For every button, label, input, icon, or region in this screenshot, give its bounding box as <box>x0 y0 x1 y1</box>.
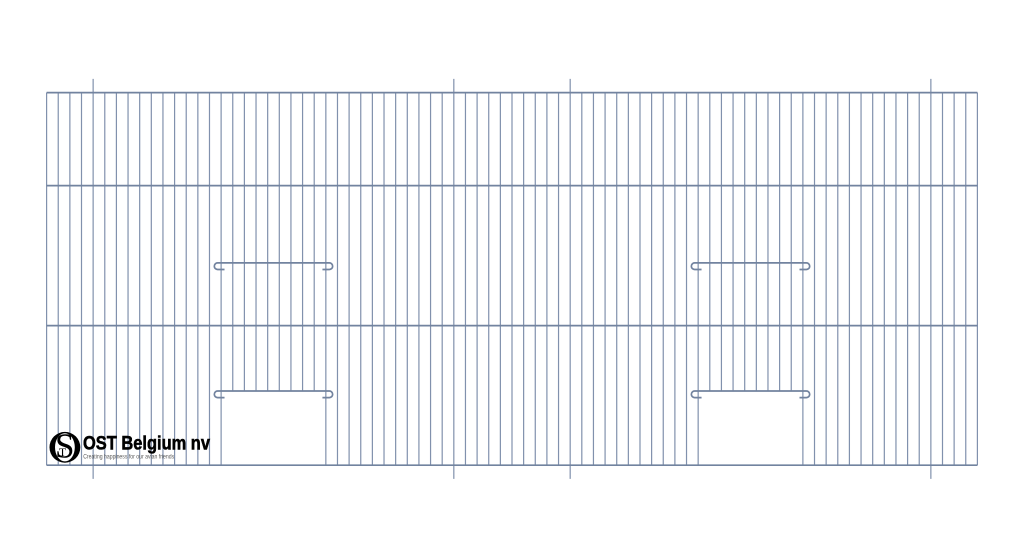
svg-text:S: S <box>55 427 74 466</box>
svg-text:Creating happiness for our avi: Creating happiness for our avian friends <box>83 454 174 461</box>
svg-text:OST Belgium nv: OST Belgium nv <box>83 433 210 454</box>
